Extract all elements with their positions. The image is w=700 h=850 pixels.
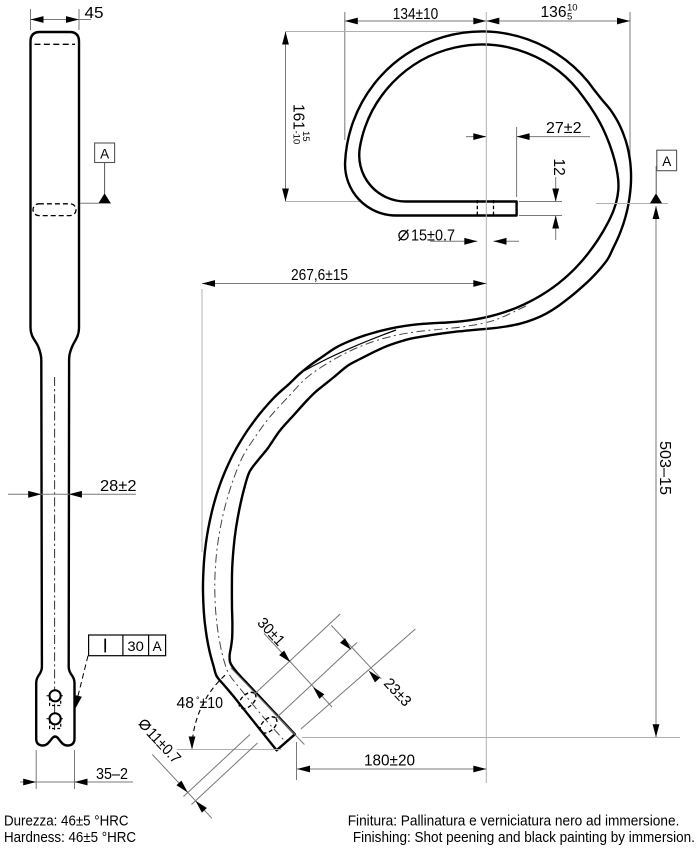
svg-text:5: 5 (567, 12, 572, 23)
svg-text:11±0.7: 11±0.7 (143, 725, 184, 767)
svg-text:Finishing: Shot peening and bl: Finishing: Shot peening and black painti… (353, 830, 695, 846)
svg-text:503–15: 503–15 (656, 441, 673, 495)
svg-text:Durezza: 46±5 °HRC: Durezza: 46±5 °HRC (4, 814, 129, 830)
svg-text:180±20: 180±20 (364, 753, 415, 770)
svg-text:161: 161 (290, 104, 307, 130)
svg-text:30±1: 30±1 (254, 615, 288, 650)
svg-text:48: 48 (177, 695, 195, 712)
svg-text:30: 30 (127, 639, 144, 654)
svg-text:45: 45 (85, 5, 104, 22)
svg-text:A: A (662, 154, 671, 169)
svg-text:12: 12 (550, 159, 567, 176)
svg-text:Hardness: 46±5 °HRC: Hardness: 46±5 °HRC (4, 830, 136, 846)
svg-text:A: A (100, 147, 109, 162)
svg-text:136: 136 (541, 4, 567, 21)
svg-text:35–2: 35–2 (96, 766, 128, 783)
svg-text:A: A (153, 639, 162, 654)
svg-text:±10: ±10 (200, 695, 224, 712)
svg-text:27±2: 27±2 (546, 120, 582, 137)
svg-text:15±0.7: 15±0.7 (411, 228, 455, 245)
svg-text:Finitura: Pallinatura e vernic: Finitura: Pallinatura e verniciatura ner… (348, 814, 680, 830)
svg-text:-10: -10 (291, 131, 302, 145)
svg-text:134±10: 134±10 (393, 6, 439, 23)
svg-text:28±2: 28±2 (100, 478, 137, 495)
svg-text:267,6±15: 267,6±15 (291, 267, 348, 284)
svg-text:23±3: 23±3 (380, 675, 414, 710)
